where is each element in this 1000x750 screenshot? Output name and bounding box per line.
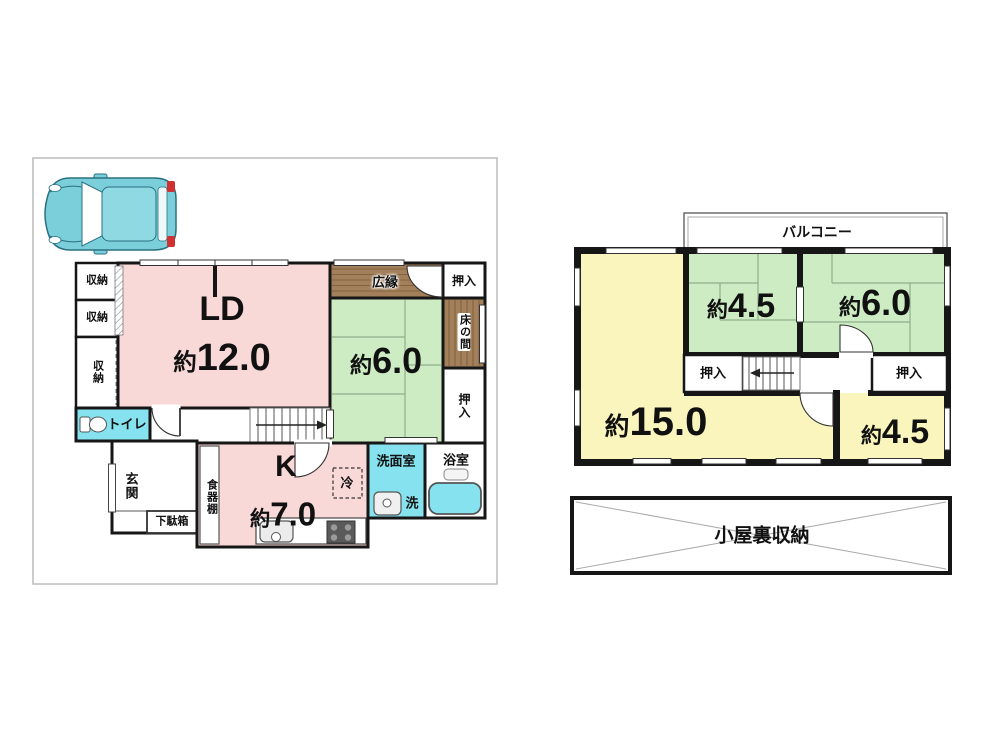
window-2f-bottom-2 <box>702 459 746 465</box>
car-rear-window <box>158 187 167 241</box>
floorplan-page: 収納 収納 収納 LD 約12.0 広縁 押入 床の間 約6.0 押入 トイレ … <box>0 0 1000 750</box>
toilet-tank-icon <box>80 417 90 432</box>
washbasin-drain-icon <box>383 499 391 507</box>
window-1f-top-ld <box>140 260 288 266</box>
label-storage-2: 収納 <box>86 313 108 324</box>
window-2f-left-lower <box>575 390 581 426</box>
label-laundry: 洗 <box>405 497 418 510</box>
label-bath: 浴室 <box>443 454 469 467</box>
stove-icon <box>327 521 355 543</box>
label-getabako: 下駄箱 <box>156 517 189 528</box>
stove-burner <box>345 524 351 530</box>
label-hiroen: 広縁 <box>372 276 398 289</box>
label-storage-1: 収納 <box>86 276 108 287</box>
label-oshiire-2f-right: 押入 <box>896 367 922 380</box>
label-toilet: トイレ <box>107 418 146 431</box>
label-ld-size: 約12.0 <box>173 339 271 377</box>
window-1f-right <box>480 305 486 363</box>
label-k-size: 約7.0 <box>250 498 316 531</box>
window-2f-top-45 <box>697 248 782 254</box>
label-shokkidana: 食器棚 <box>206 479 217 515</box>
label-oshiire-right: 押入 <box>458 393 470 419</box>
car-taillight-bottom <box>167 236 175 247</box>
label-room45b-size: 約4.5 <box>861 415 929 449</box>
label-oshiire-2f-left: 押入 <box>700 367 726 380</box>
label-oshiire-top: 押入 <box>452 275 476 287</box>
entrance-door <box>109 464 116 512</box>
closet-hatch-strip <box>115 266 123 335</box>
stove-burner <box>331 534 337 540</box>
car-headlight-top <box>49 185 61 192</box>
car-headlight-bottom <box>49 237 61 244</box>
door-opening-60 <box>839 352 873 358</box>
car-icon <box>45 174 176 254</box>
stove-burner <box>331 524 337 530</box>
window-2f-bottom-1 <box>633 459 671 465</box>
stairs-1f <box>250 408 330 443</box>
window-1f-washitsu-bottom <box>385 438 437 444</box>
label-ld: LD <box>199 292 244 326</box>
window-1f-top-hiroen <box>334 260 404 266</box>
ld-door-opening <box>152 405 181 412</box>
stove-burner <box>345 534 351 540</box>
stairs-2f <box>743 357 800 390</box>
car-roof <box>102 187 156 241</box>
label-washitsu-size: 約6.0 <box>350 343 422 379</box>
bathtub-icon <box>429 483 481 514</box>
label-balcony: バルコニー <box>782 225 852 239</box>
label-fridge: 冷 <box>340 477 353 490</box>
car-taillight-top <box>167 181 175 192</box>
label-room60-size: 約6.0 <box>839 285 911 321</box>
label-attic: 小屋裏収納 <box>714 527 809 546</box>
wall-2f-v833 <box>833 390 840 462</box>
washitsu-sliding-opening <box>327 410 334 438</box>
label-storage-3: 収納 <box>92 360 103 384</box>
label-senmen: 洗面室 <box>376 455 415 468</box>
window-2f-bottom-3 <box>776 459 821 465</box>
window-2f-top-60 <box>845 248 933 254</box>
window-2f-left-upper <box>575 268 581 306</box>
window-2f-bottom-4 <box>868 459 922 465</box>
car-windshield <box>82 182 102 246</box>
floorplan-drawing <box>0 0 1000 750</box>
toilet-bowl-icon <box>90 417 107 432</box>
label-room45a-size: 約4.5 <box>707 289 775 323</box>
label-genkan: 玄関 <box>125 472 138 500</box>
room-ld <box>118 263 330 408</box>
label-room15-size: 約15.0 <box>605 402 708 442</box>
label-tokonoma: 床の間 <box>458 313 471 351</box>
bath-ledge-icon <box>444 469 468 480</box>
window-2f-right-lower <box>945 408 951 450</box>
window-2f-top-15 <box>606 248 676 254</box>
window-2f-right-upper <box>945 266 951 306</box>
sink-drain-icon <box>272 533 281 542</box>
label-k: K <box>275 452 297 482</box>
sliding-door-2f <box>797 287 804 322</box>
